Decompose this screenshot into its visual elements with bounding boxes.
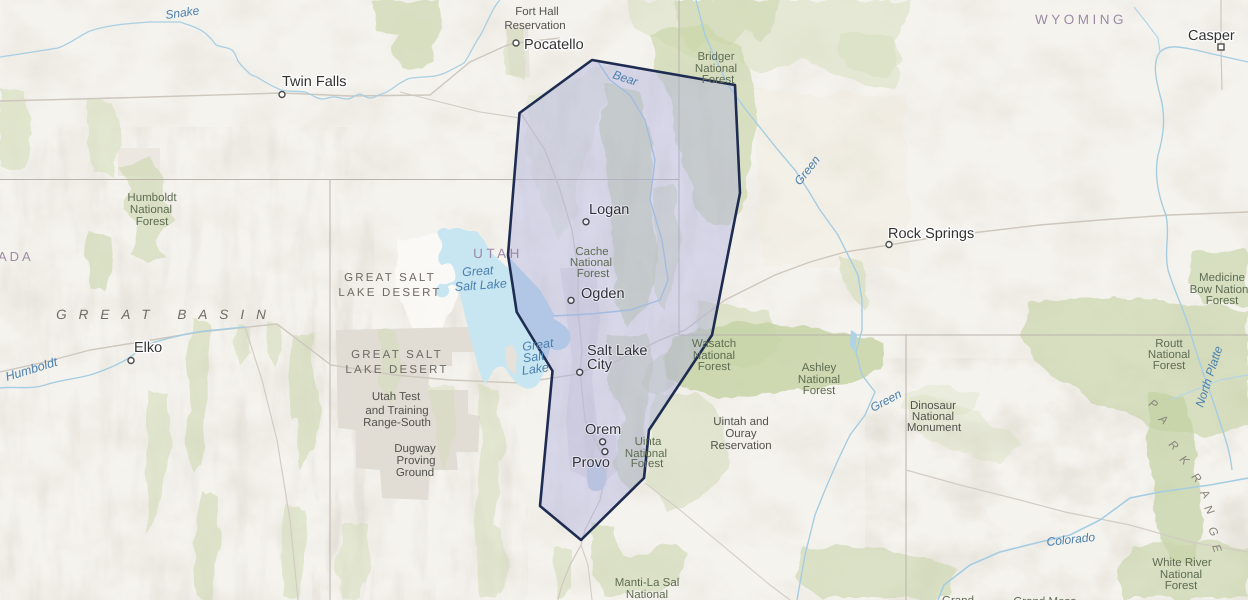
svg-text:National: National [626, 589, 668, 600]
svg-text:Reservation: Reservation [710, 440, 771, 452]
svg-text:Forest: Forest [1153, 360, 1186, 372]
svg-text:Forest: Forest [136, 216, 169, 228]
svg-text:GREAT SALT: GREAT SALT [344, 272, 436, 284]
svg-text:GREAT BASIN: GREAT BASIN [56, 307, 278, 322]
svg-text:Uintah and: Uintah and [713, 416, 769, 428]
svg-text:WYOMING: WYOMING [1035, 12, 1127, 27]
svg-text:Ground: Ground [396, 467, 434, 479]
svg-text:Medicine: Medicine [1199, 272, 1245, 284]
svg-text:Forest: Forest [1165, 580, 1198, 592]
svg-text:Bridger: Bridger [697, 51, 734, 63]
svg-text:Elko: Elko [134, 340, 162, 356]
svg-text:Ogden: Ogden [581, 286, 625, 302]
svg-text:City: City [587, 357, 613, 373]
svg-text:National: National [130, 204, 172, 216]
svg-text:Proving: Proving [397, 455, 436, 467]
svg-text:Forest: Forest [803, 385, 836, 397]
svg-text:Forest: Forest [702, 74, 735, 86]
svg-text:White River: White River [1152, 557, 1212, 569]
svg-text:Monument: Monument [907, 422, 962, 434]
svg-text:Rock Springs: Rock Springs [888, 226, 974, 242]
svg-text:and Training: and Training [365, 405, 428, 417]
svg-text:Range-South: Range-South [363, 417, 431, 429]
svg-text:Ashley: Ashley [802, 362, 837, 374]
svg-text:LAKE DESERT: LAKE DESERT [338, 287, 441, 299]
svg-text:Reservation: Reservation [504, 20, 565, 32]
svg-text:ADA: ADA [0, 249, 34, 264]
svg-text:Grand Mesa: Grand Mesa [1013, 596, 1077, 600]
svg-text:Uinta: Uinta [635, 436, 662, 448]
svg-text:Dugway: Dugway [394, 443, 436, 455]
svg-text:Humboldt: Humboldt [127, 192, 177, 204]
svg-text:UTAH: UTAH [473, 246, 523, 261]
svg-text:Wasatch: Wasatch [692, 338, 736, 350]
svg-text:Logan: Logan [589, 202, 629, 218]
svg-text:Provo: Provo [572, 455, 610, 471]
svg-text:Utah Test: Utah Test [372, 391, 421, 403]
svg-text:Forest: Forest [698, 361, 731, 373]
svg-text:Ouray: Ouray [725, 428, 757, 440]
svg-text:Forest: Forest [631, 458, 664, 470]
svg-text:Casper: Casper [1188, 28, 1235, 44]
svg-text:GREAT SALT: GREAT SALT [351, 349, 443, 361]
svg-text:LAKE DESERT: LAKE DESERT [345, 364, 448, 376]
svg-text:Pocatello: Pocatello [524, 37, 584, 53]
svg-text:Forest: Forest [1206, 295, 1239, 307]
svg-text:Manti-La Sal: Manti-La Sal [615, 577, 680, 589]
svg-text:Grand: Grand [942, 595, 974, 600]
svg-text:Fort Hall: Fort Hall [515, 6, 558, 18]
svg-text:Twin Falls: Twin Falls [282, 74, 346, 90]
svg-text:Forest: Forest [577, 268, 610, 280]
svg-text:Orem: Orem [585, 422, 621, 438]
